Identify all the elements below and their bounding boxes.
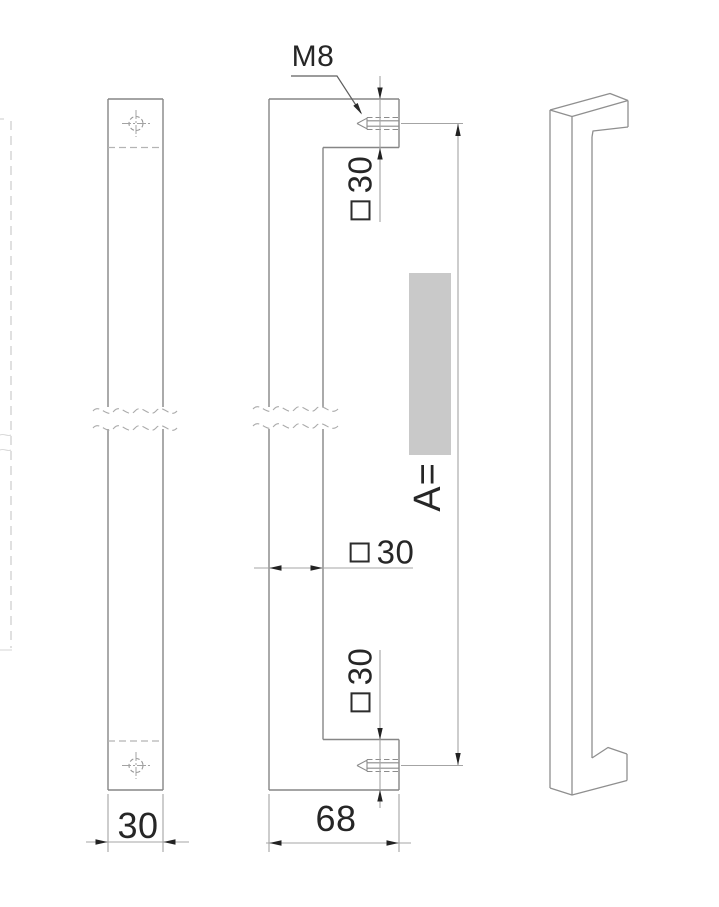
square-section-icon bbox=[350, 200, 370, 220]
grip-width-text: 30 bbox=[377, 536, 415, 569]
screw-hole-center-mark-bottom bbox=[122, 752, 150, 779]
square-section-icon bbox=[350, 692, 370, 712]
dim-label-bottom-post-section: 30 bbox=[344, 648, 377, 713]
dim-label-grip-width: 30 bbox=[350, 536, 415, 569]
back-view-outline bbox=[108, 99, 163, 790]
a-equals-text: A= bbox=[409, 462, 447, 512]
leader-arrowhead bbox=[353, 103, 362, 115]
partial-left-view bbox=[0, 119, 12, 650]
profile-view-break-lines bbox=[253, 407, 338, 429]
dim-label-back-width-30: 30 bbox=[117, 808, 158, 844]
top-post-section-text: 30 bbox=[344, 156, 377, 194]
dim-label-a-equals: A= bbox=[409, 462, 447, 512]
m8-leader-line bbox=[291, 76, 362, 115]
depth-text: 68 bbox=[315, 801, 356, 837]
dim-label-depth-68: 68 bbox=[315, 801, 356, 837]
m8-text: M8 bbox=[292, 42, 335, 72]
technical-drawing: M8 30 30 30 A= 30 68 bbox=[0, 0, 719, 907]
back-view-hidden-lines bbox=[108, 148, 163, 742]
screw-hole-center-mark-top bbox=[122, 110, 150, 137]
threaded-hole-top bbox=[357, 118, 399, 130]
highlight-box bbox=[409, 273, 451, 455]
back-view-break-lines bbox=[93, 409, 177, 431]
dim-label-m8: M8 bbox=[292, 42, 335, 72]
iso-view-outline bbox=[550, 94, 628, 796]
back-width-text: 30 bbox=[117, 808, 158, 844]
dimension-arrowheads bbox=[96, 88, 461, 846]
square-section-icon bbox=[350, 542, 370, 562]
dim-label-top-post-section: 30 bbox=[344, 156, 377, 221]
bottom-post-section-text: 30 bbox=[344, 648, 377, 686]
drawing-linework bbox=[0, 0, 719, 907]
threaded-hole-bottom bbox=[357, 760, 399, 772]
